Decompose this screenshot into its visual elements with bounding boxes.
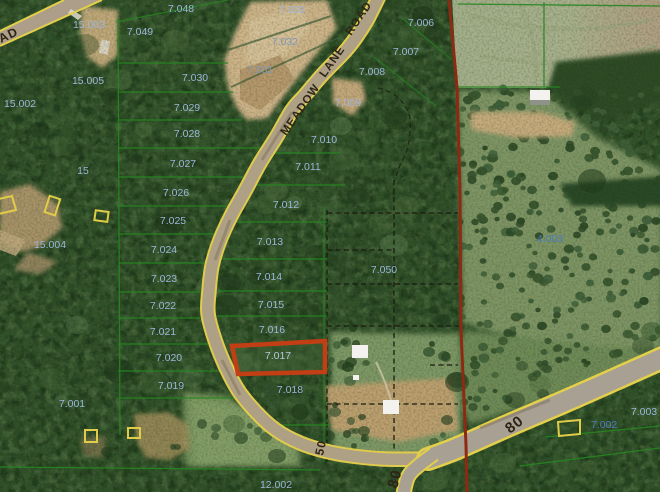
svg-text:7.049: 7.049 — [127, 26, 153, 38]
svg-text:7.014: 7.014 — [256, 271, 282, 283]
svg-text:7.002: 7.002 — [591, 419, 617, 431]
svg-text:7.001: 7.001 — [59, 398, 85, 410]
svg-text:7.031: 7.031 — [247, 64, 273, 76]
svg-text:15.005: 15.005 — [72, 75, 104, 87]
svg-text:15: 15 — [77, 165, 89, 177]
svg-text:7.013: 7.013 — [257, 236, 283, 248]
svg-text:7.003: 7.003 — [631, 406, 657, 418]
svg-text:7.021: 7.021 — [150, 326, 176, 338]
svg-text:7.019: 7.019 — [158, 380, 184, 392]
svg-text:7.008: 7.008 — [359, 66, 385, 78]
svg-text:7.020: 7.020 — [156, 352, 182, 364]
svg-text:7.027: 7.027 — [170, 158, 196, 170]
svg-text:7.016: 7.016 — [259, 324, 285, 336]
svg-text:7.050: 7.050 — [371, 264, 397, 276]
svg-text:7.010: 7.010 — [311, 134, 337, 146]
svg-text:15.004: 15.004 — [34, 239, 66, 251]
svg-text:7.006: 7.006 — [408, 17, 434, 29]
svg-text:15.003: 15.003 — [73, 19, 105, 31]
svg-text:7.018: 7.018 — [277, 384, 303, 396]
svg-text:7.012: 7.012 — [273, 199, 299, 211]
svg-text:7.015: 7.015 — [258, 299, 284, 311]
svg-text:7.028: 7.028 — [174, 128, 200, 140]
svg-text:7.024: 7.024 — [151, 244, 177, 256]
svg-text:7.033: 7.033 — [279, 4, 305, 16]
svg-text:7.032: 7.032 — [272, 36, 298, 48]
svg-text:7.007: 7.007 — [393, 46, 419, 58]
svg-text:7.025: 7.025 — [160, 215, 186, 227]
svg-text:7.023: 7.023 — [151, 273, 177, 285]
svg-text:7.048: 7.048 — [168, 3, 194, 15]
svg-text:7.029: 7.029 — [174, 102, 200, 114]
svg-text:7.011: 7.011 — [295, 161, 321, 173]
svg-text:4.003: 4.003 — [537, 233, 563, 245]
svg-text:12.002: 12.002 — [260, 479, 292, 491]
svg-text:15.002: 15.002 — [4, 98, 36, 110]
svg-text:7.009: 7.009 — [335, 97, 361, 109]
svg-text:7.022: 7.022 — [150, 300, 176, 312]
svg-text:7.017: 7.017 — [265, 350, 291, 362]
svg-text:7.026: 7.026 — [163, 187, 189, 199]
svg-text:7.030: 7.030 — [182, 72, 208, 84]
